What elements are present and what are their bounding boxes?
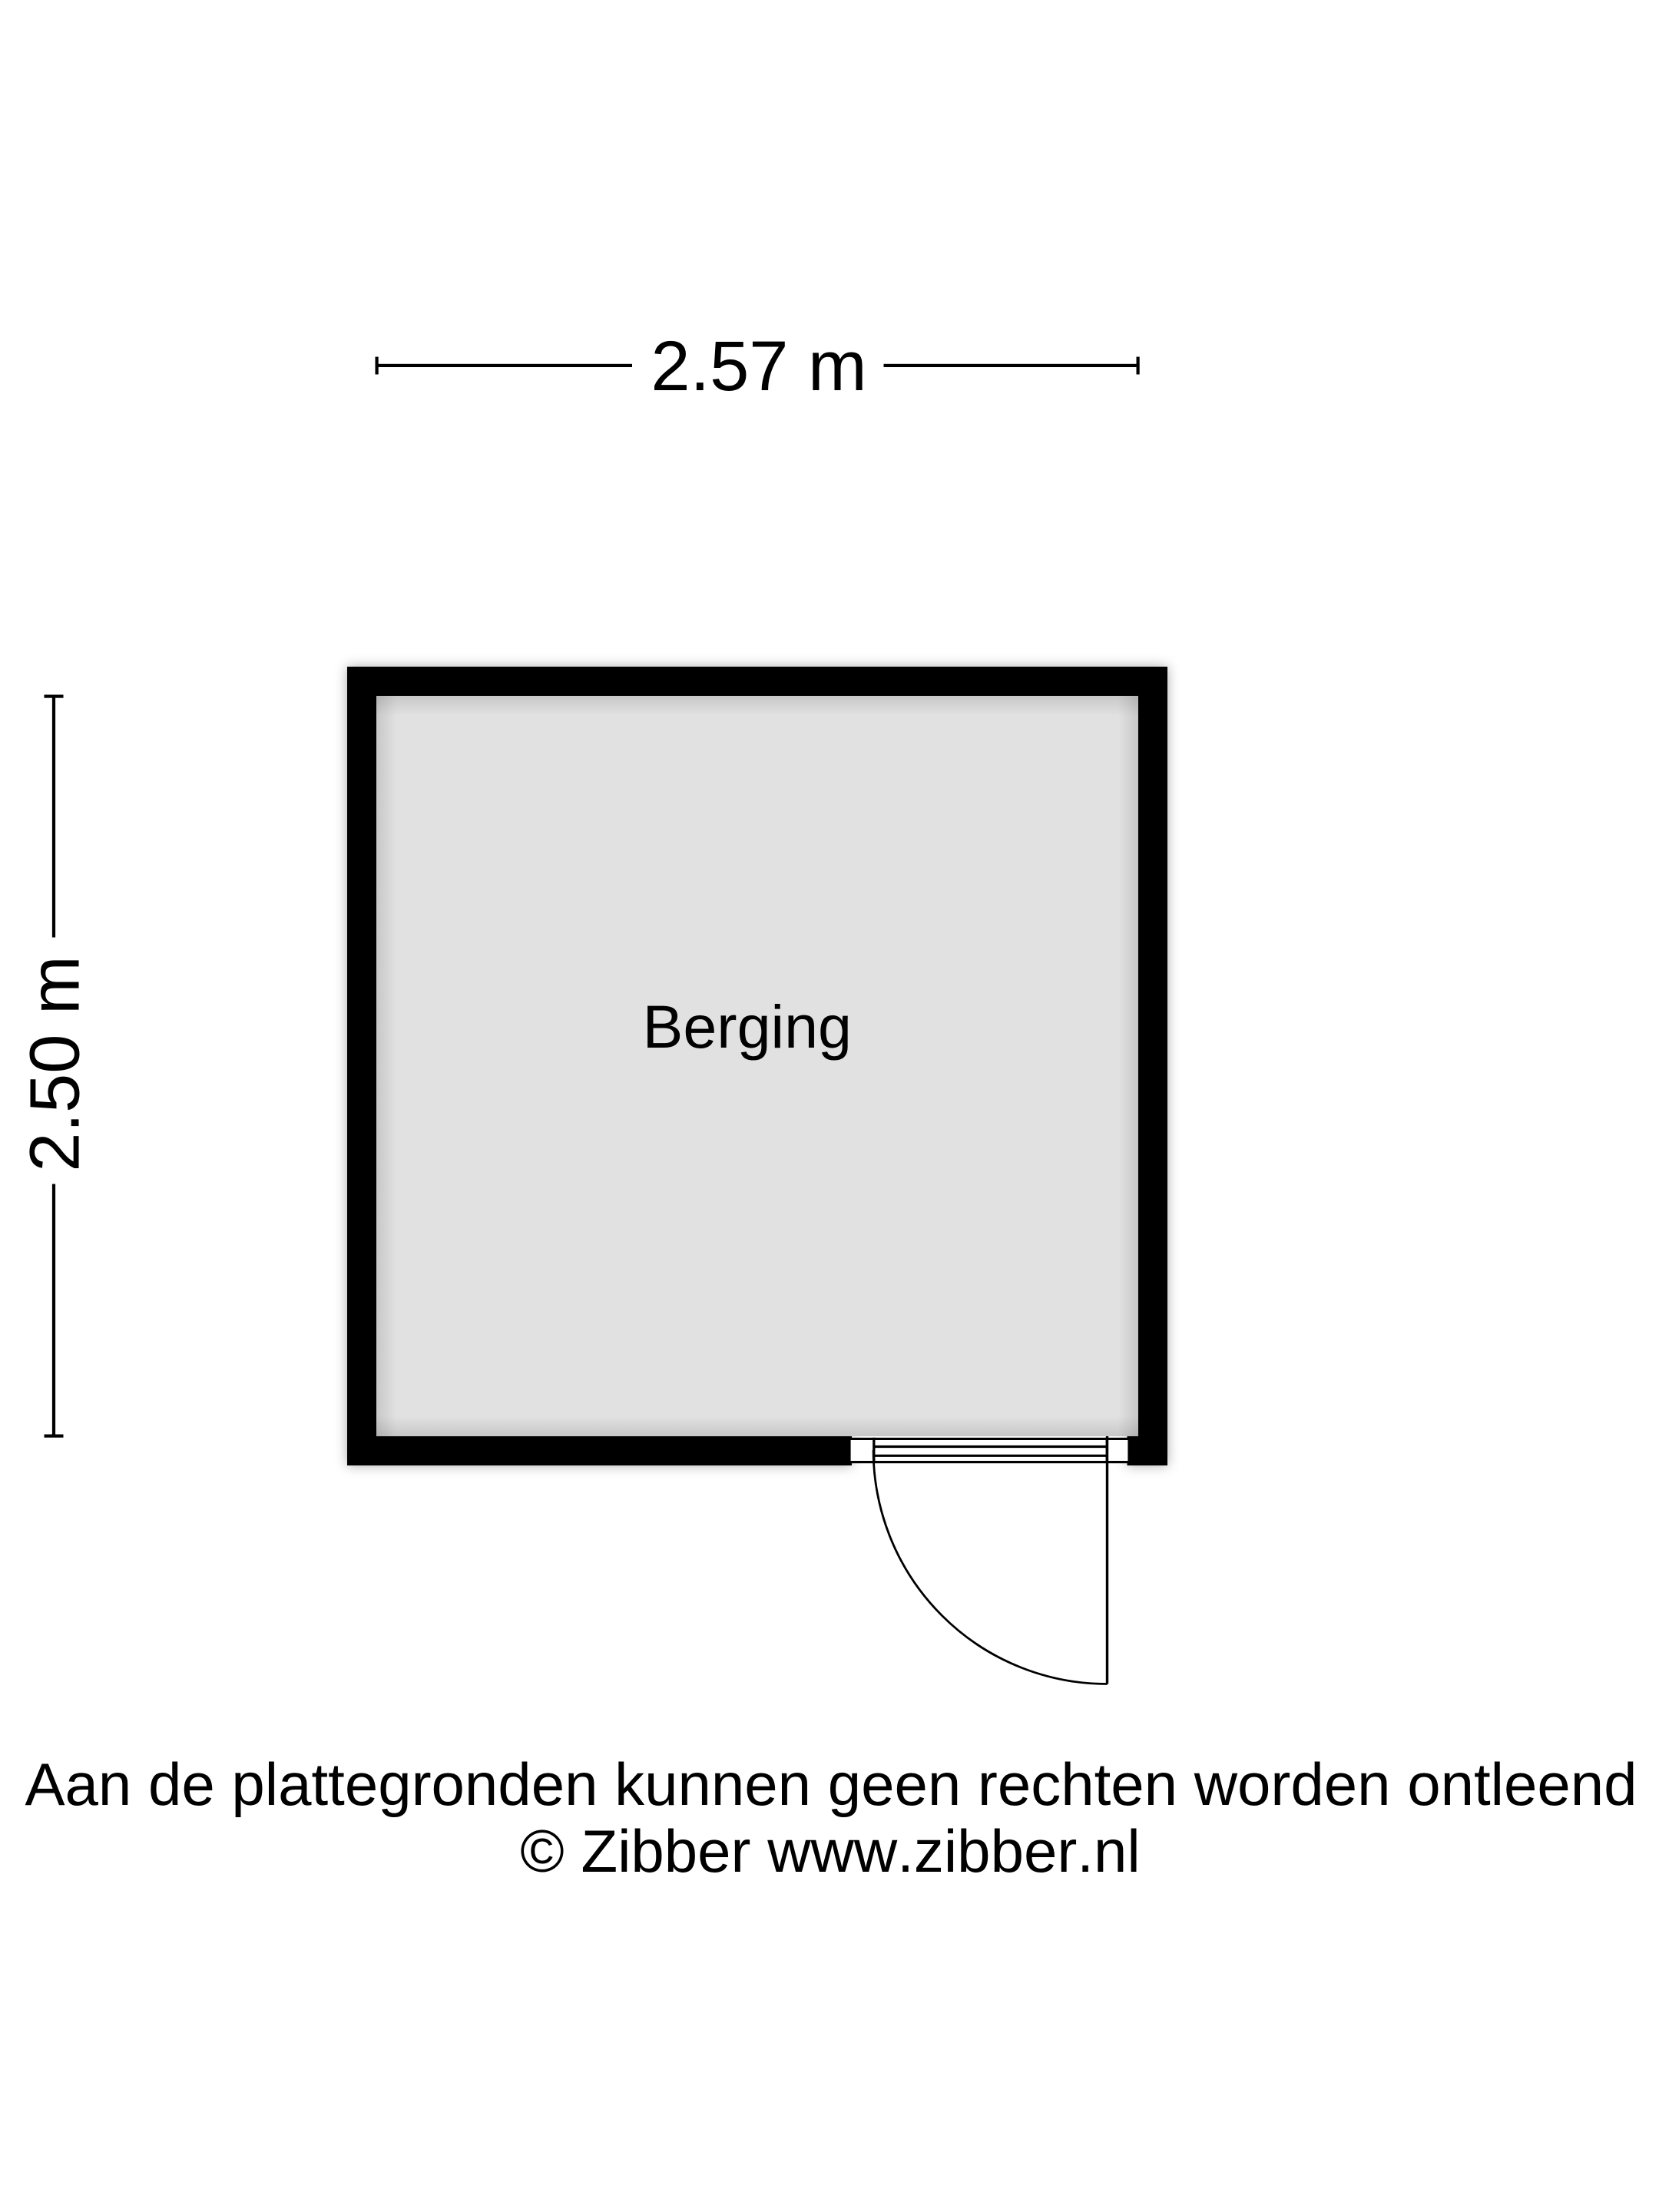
svg-text:© Zibber www.zibber.nl: © Zibber www.zibber.nl xyxy=(520,1817,1140,1885)
svg-text:Aan de plattegronden kunnen ge: Aan de plattegronden kunnen geen rechten… xyxy=(25,1750,1637,1818)
svg-text:2.57 m: 2.57 m xyxy=(651,327,866,406)
svg-text:2.50 m: 2.50 m xyxy=(16,955,94,1171)
svg-text:Berging: Berging xyxy=(643,992,852,1061)
